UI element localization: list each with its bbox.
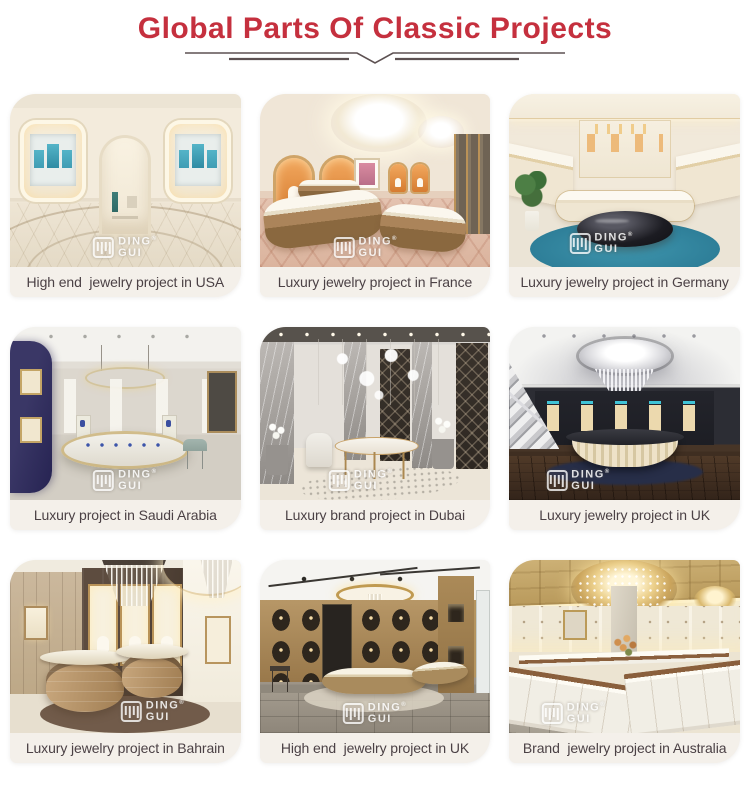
- glass-bubble-chandelier: [318, 339, 440, 405]
- section-header: Global Parts Of Classic Projects: [0, 12, 750, 68]
- project-caption: Luxury jewelry project in Germany: [509, 267, 740, 297]
- project-image-saudi-arabia: DING®GUI: [10, 327, 241, 500]
- white-door: [476, 590, 490, 694]
- stool: [183, 439, 207, 469]
- project-caption: High end jewelry project in USA: [10, 267, 241, 297]
- project-caption: Luxury jewelry project in Bahrain: [10, 733, 241, 763]
- flower-bouquet: [607, 632, 643, 658]
- project-card-saudi-arabia: DING®GUI Luxury project in Saudi Arabia: [10, 327, 241, 530]
- recessed-ceiling-lights: [529, 334, 720, 338]
- display-window-right: [165, 120, 231, 202]
- project-image-usa: DING®GUI: [10, 94, 241, 267]
- round-bronze-counter: [46, 658, 124, 712]
- small-wall-niche: [390, 164, 406, 192]
- crystal-chandelier: [331, 94, 427, 152]
- purple-display-column: [10, 341, 52, 493]
- project-caption: Luxury jewelry project in France: [260, 267, 491, 297]
- project-caption: Brand jewelry project in Australia: [509, 733, 740, 763]
- title-divider-ornament: [185, 50, 565, 68]
- project-image-germany: DING®GUI: [509, 94, 740, 267]
- project-card-australia: DING®GUI Brand jewelry project in Austra…: [509, 560, 740, 763]
- side-table: [270, 666, 290, 692]
- glass-top-counter-right: [624, 658, 740, 733]
- dinggui-logo-icon: [93, 470, 114, 491]
- potted-plant: [515, 171, 549, 217]
- bronze-lattice-screen: [456, 343, 488, 469]
- bronze-display-column: [438, 576, 474, 704]
- project-image-dubai: DING®GUI: [260, 327, 491, 500]
- project-caption: Luxury project in Saudi Arabia: [10, 500, 241, 530]
- project-caption: Luxury brand project in Dubai: [260, 500, 491, 530]
- projects-grid: DING®GUI High end jewelry project in USA…: [0, 94, 750, 763]
- ceiling-cove: [509, 94, 740, 119]
- project-card-uk: DING®GUI Luxury jewelry project in UK: [509, 327, 740, 530]
- project-image-uk-high-end: DING®GUI: [260, 560, 491, 733]
- project-card-uk-high-end: DING®GUI High end jewelry project in UK: [260, 560, 491, 763]
- project-image-uk: DING®GUI: [509, 327, 740, 500]
- round-gold-leg-table: [335, 437, 419, 479]
- curved-display-counter: [322, 668, 426, 694]
- project-image-bahrain: DING®GUI: [10, 560, 241, 733]
- project-card-germany: DING®GUI Luxury jewelry project in Germa…: [509, 94, 740, 297]
- wall-mirror: [207, 371, 237, 433]
- project-card-france: DING®GUI Luxury jewelry project in Franc…: [260, 94, 491, 297]
- round-bronze-counter: [122, 652, 182, 698]
- jewelry-display: [30, 134, 76, 186]
- orchid-vase: [432, 417, 454, 469]
- tiered-crystal-chandelier: [579, 339, 671, 373]
- round-display-counter: [61, 431, 189, 469]
- project-card-bahrain: DING®GUI Luxury jewelry project in Bahra…: [10, 560, 241, 763]
- gold-framed-mirror: [565, 612, 585, 638]
- display-window-left: [20, 120, 86, 202]
- white-chair: [306, 433, 332, 467]
- pendant-lights: [595, 124, 655, 134]
- jewelry-display: [175, 134, 221, 186]
- dinggui-watermark: DING®GUI: [93, 469, 157, 492]
- page-title: Global Parts Of Classic Projects: [0, 12, 750, 46]
- project-card-dubai: DING®GUI Luxury brand project in Dubai: [260, 327, 491, 530]
- project-image-france: DING®GUI: [260, 94, 491, 267]
- recessed-ceiling-lights: [34, 334, 217, 339]
- project-image-australia: DING®GUI: [509, 560, 740, 733]
- small-wall-niche: [412, 164, 428, 192]
- oval-counter-top: [566, 429, 684, 445]
- framed-artwork: [356, 160, 378, 188]
- black-round-table: [577, 211, 673, 247]
- interior-view: [110, 164, 140, 226]
- project-card-usa: DING®GUI High end jewelry project in USA: [10, 94, 241, 297]
- project-caption: Luxury jewelry project in UK: [509, 500, 740, 530]
- arched-doorway: [102, 138, 148, 234]
- project-caption: High end jewelry project in UK: [260, 733, 491, 763]
- orchid-vase: [266, 423, 288, 475]
